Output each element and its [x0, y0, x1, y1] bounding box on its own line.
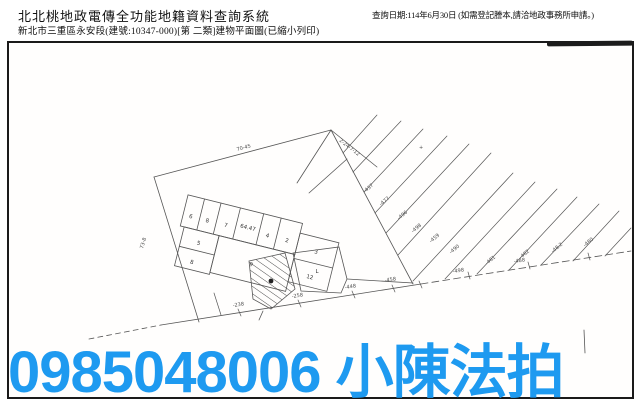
room-label: 2	[284, 238, 289, 245]
room-label: 8	[205, 218, 210, 225]
query-date-note: 查詢日期:114年6月30日 (如需登記謄本,請洽地政事務所申請。)	[372, 9, 634, 21]
connector-line	[347, 279, 413, 283]
room-label: 64.47	[239, 223, 256, 233]
map-annotation: -437	[362, 183, 375, 195]
map-annotation: -480	[582, 237, 595, 249]
room-l-outline	[293, 247, 347, 293]
boundary-bottom-dashed	[89, 325, 161, 339]
map-annotation: -488	[513, 257, 525, 265]
corridor-line-b	[309, 159, 347, 193]
map-annotation: -238	[232, 301, 244, 309]
map-annotation: -258	[291, 292, 303, 300]
room-label: 8	[189, 259, 194, 266]
map-annotation: -459	[428, 233, 441, 245]
boundary-top	[154, 130, 331, 177]
map-annotation: 73-8	[139, 237, 148, 250]
map-annotation: 2-24-7-12	[338, 138, 361, 158]
room-label: 6	[188, 214, 193, 221]
room-label: 7	[223, 223, 228, 230]
watermark-text: 0985048006 小陳法拍	[8, 344, 640, 402]
map-annotation: -448	[344, 283, 356, 291]
parcel-pointer	[259, 311, 263, 320]
map-annotation: -458	[384, 276, 396, 284]
map-annotation: -498	[410, 223, 423, 235]
map-annotation: -48.2	[550, 242, 564, 255]
document-caption: 新北市三重區永安段(建號:10347-000)[第 二類]建物平面圖(已縮小列印…	[18, 23, 378, 37]
map-annotation: -490	[448, 244, 461, 256]
map-annotation: -496	[396, 210, 409, 222]
map-annotation: +	[419, 145, 423, 151]
room-label: L	[315, 269, 319, 275]
map-annotation: -498	[452, 267, 464, 275]
room-label: 3	[313, 249, 318, 256]
room-label: 5	[196, 241, 201, 248]
room-label: 4	[265, 233, 270, 240]
room-label: 12	[305, 274, 313, 282]
parcel-mark-dot	[269, 279, 274, 284]
map-annotation: -481	[484, 255, 497, 267]
